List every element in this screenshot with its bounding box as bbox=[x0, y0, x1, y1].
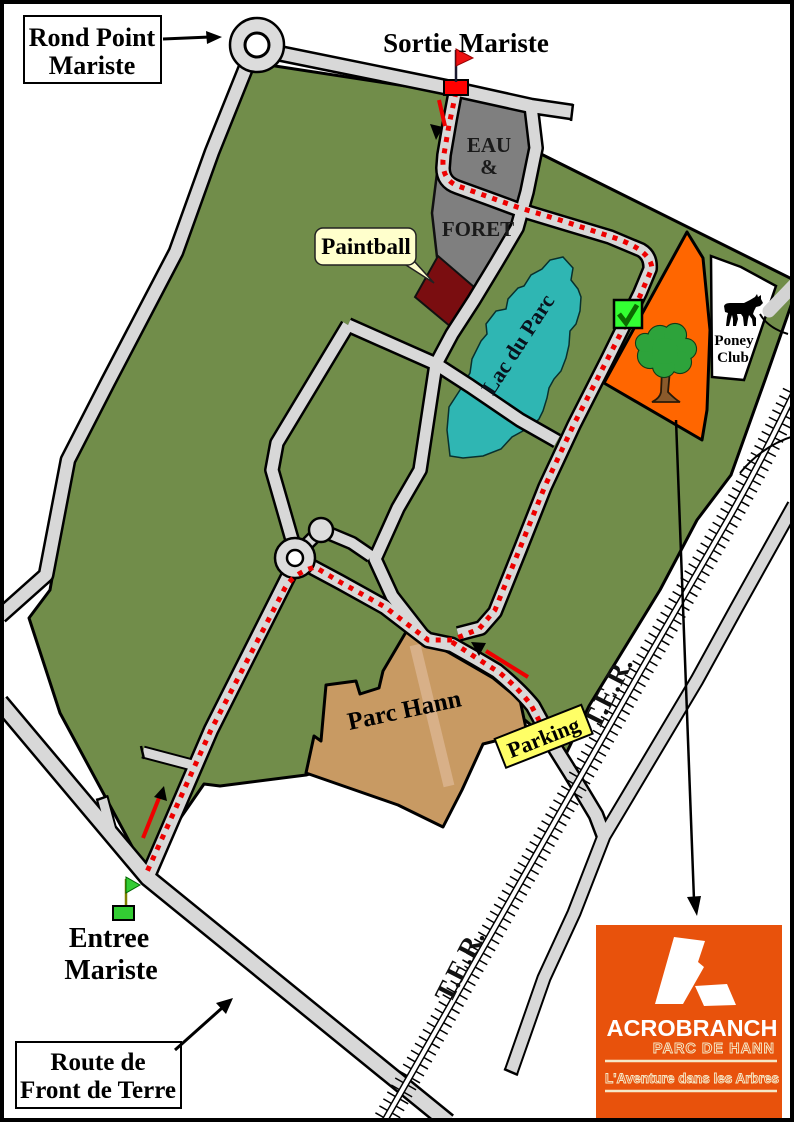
svg-text:Mariste: Mariste bbox=[64, 955, 157, 986]
svg-text:EAU: EAU bbox=[467, 133, 511, 157]
svg-text:Front de Terre: Front de Terre bbox=[20, 1077, 176, 1104]
svg-text:PARC DE HANN: PARC DE HANN bbox=[653, 1041, 775, 1057]
svg-text:Club: Club bbox=[717, 350, 749, 366]
svg-text:Sortie Mariste: Sortie Mariste bbox=[383, 28, 549, 58]
svg-text:FORET: FORET bbox=[442, 217, 514, 241]
svg-text:L'Aventure dans les Arbres: L'Aventure dans les Arbres bbox=[605, 1071, 779, 1086]
svg-text:ACROBRANCH: ACROBRANCH bbox=[606, 1015, 777, 1041]
svg-text:&: & bbox=[480, 155, 498, 179]
svg-text:Route de: Route de bbox=[50, 1049, 145, 1076]
svg-text:Entree: Entree bbox=[69, 923, 149, 954]
svg-text:Paintball: Paintball bbox=[321, 234, 410, 259]
svg-text:Poney: Poney bbox=[714, 333, 754, 349]
svg-text:Mariste: Mariste bbox=[49, 51, 136, 80]
svg-text:Rond Point: Rond Point bbox=[29, 23, 156, 52]
